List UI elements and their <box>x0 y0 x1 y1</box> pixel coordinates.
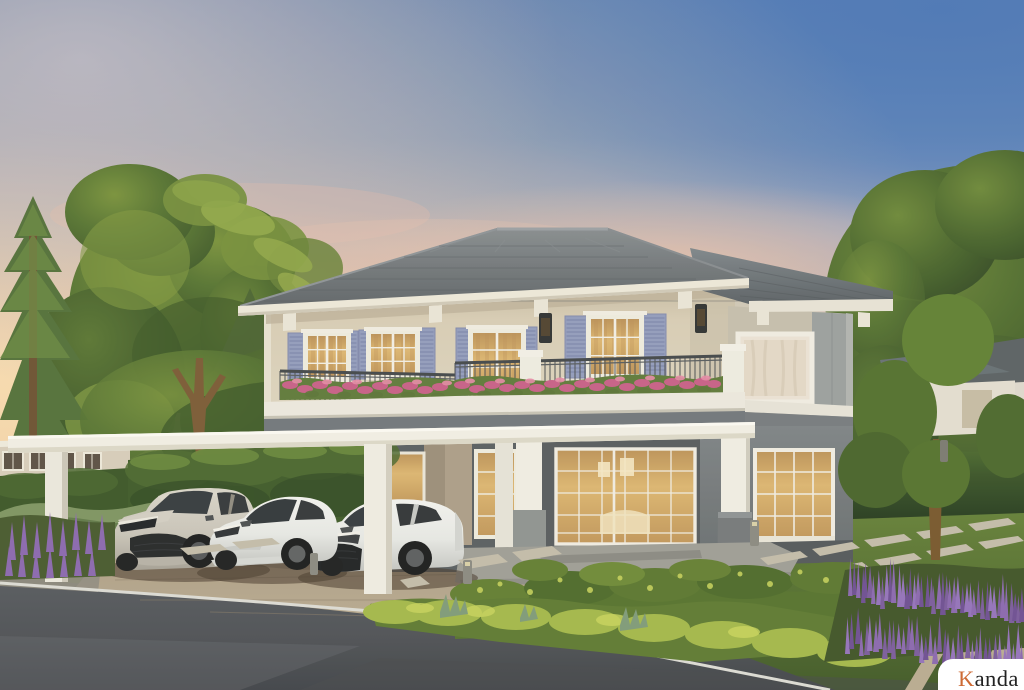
svg-text:Kanda: Kanda <box>958 666 1019 690</box>
